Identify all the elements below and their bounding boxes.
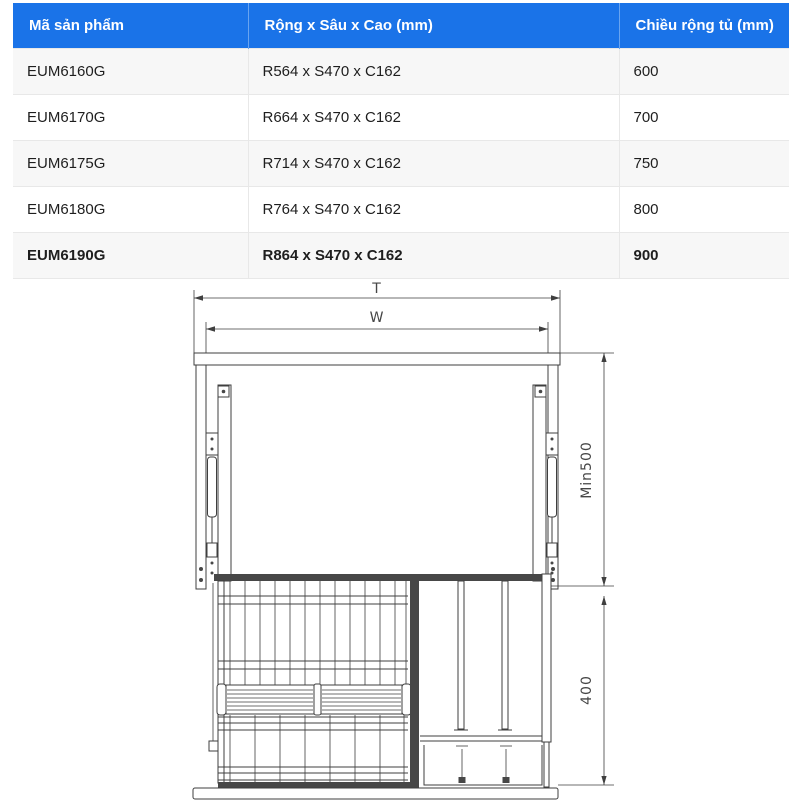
dimension-min-height: Min500	[551, 353, 614, 586]
product-spec-table: Mã sản phẩm Rộng x Sâu x Cao (mm) Chiều …	[13, 3, 789, 279]
upper-grid-bands	[218, 596, 408, 669]
product-code-cell: EUM6175G	[13, 141, 248, 187]
right-gas-spring	[546, 433, 558, 575]
dimensions-cell: R764 x S470 x C162	[248, 187, 619, 233]
dim-label-W: W	[370, 310, 385, 326]
product-code-cell: EUM6160G	[13, 49, 248, 95]
basket-center-divider	[410, 574, 419, 788]
slatted-tray	[217, 684, 411, 715]
cabinet-width-cell: 800	[619, 187, 789, 233]
lower-grid-wires	[230, 715, 404, 782]
left-side-wall	[196, 365, 206, 589]
col-header-product-code: Mã sản phẩm	[13, 3, 248, 49]
dimension-inner-width: W	[206, 310, 548, 353]
col-header-dimensions: Rộng x Sâu x Cao (mm)	[248, 3, 619, 49]
table-header-row: Mã sản phẩm Rộng x Sâu x Cao (mm) Chiều …	[13, 3, 789, 49]
dimensions-cell: R564 x S470 x C162	[248, 49, 619, 95]
cabinet-width-cell: 700	[619, 95, 789, 141]
dim-label-T: T	[371, 281, 382, 297]
cabinet-top-panel	[194, 353, 560, 365]
dimensions-cell: R664 x S470 x C162	[248, 95, 619, 141]
dimensions-cell: R864 x S470 x C162	[248, 233, 619, 279]
lower-grid-bands	[218, 717, 408, 780]
dimension-basket-height: 400	[558, 596, 614, 785]
basket-right-frame	[542, 574, 551, 742]
table-row: EUM6180G R764 x S470 x C162 800	[13, 187, 789, 233]
table-row: EUM6170G R664 x S470 x C162 700	[13, 95, 789, 141]
base-plate	[193, 788, 558, 799]
rear-support-leg	[209, 583, 218, 751]
left-lift-rail	[206, 385, 231, 581]
dim-label-400: 400	[579, 675, 595, 705]
tray-rack-lower	[424, 745, 542, 785]
dimensions-cell: R714 x S470 x C162	[248, 141, 619, 187]
cabinet-width-cell: 750	[619, 141, 789, 187]
left-gas-spring	[206, 433, 218, 575]
col-header-cabinet-width: Chiều rộng tủ (mm)	[619, 3, 789, 49]
table-row: EUM6160G R564 x S470 x C162 600	[13, 49, 789, 95]
table-row-highlighted: EUM6190G R864 x S470 x C162 900	[13, 233, 789, 279]
wire-basket	[214, 574, 551, 788]
product-code-cell: EUM6190G	[13, 233, 248, 279]
cabinet-width-cell: 600	[619, 49, 789, 95]
cabinet-width-cell: 900	[619, 233, 789, 279]
dim-label-min500: Min500	[579, 441, 595, 499]
table-row: EUM6175G R714 x S470 x C162 750	[13, 141, 789, 187]
product-code-cell: EUM6180G	[13, 187, 248, 233]
product-code-cell: EUM6170G	[13, 95, 248, 141]
tray-rack-upper	[420, 581, 542, 741]
